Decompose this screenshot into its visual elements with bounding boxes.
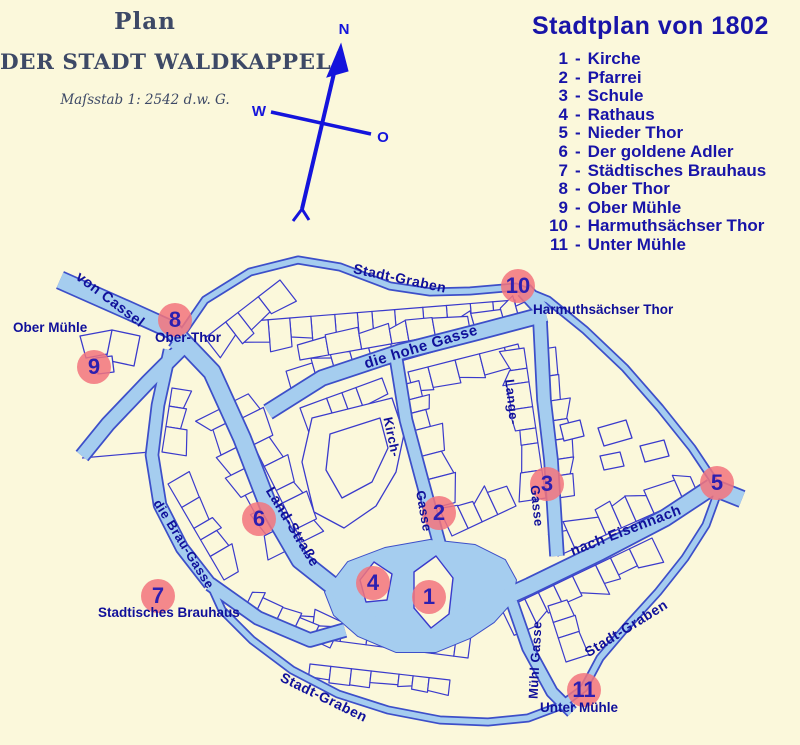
building-parcel (350, 669, 372, 688)
legend-item-separator: - (568, 236, 588, 255)
building-parcel (519, 470, 546, 502)
legend-item-label: Harmuthsächser Thor (588, 217, 765, 236)
building-parcel (329, 666, 352, 685)
compass-tail (293, 209, 309, 221)
stadtplan-canvas: NWO Plan DER STADT WALDKAPPEL Maſsstab 1… (0, 0, 800, 745)
legend-item: 2-Pfarrei (532, 69, 769, 88)
legend-title: Stadtplan von 1802 (532, 12, 769, 41)
legend-item-label: Der goldene Adler (588, 143, 734, 162)
building-outline (96, 356, 114, 374)
compass-north-label: N (339, 21, 350, 38)
legend-item-label: Nieder Thor (588, 124, 683, 143)
legend-item: 3-Schule (532, 87, 769, 106)
building-parcel (297, 337, 328, 360)
legend-item-label: Städtisches Brauhaus (588, 162, 767, 181)
building-parcel (398, 674, 413, 686)
legend-item: 6-Der goldene Adler (532, 143, 769, 162)
legend: Stadtplan von 1802 1-Kirche2-Pfarrei3-Sc… (532, 12, 769, 255)
building-parcel (507, 382, 533, 410)
scan-title-block: Plan DER STADT WALDKAPPEL Maſsstab 1: 25… (0, 0, 290, 120)
building-parcel (169, 388, 191, 408)
legend-item: 8-Ober Thor (532, 180, 769, 199)
legend-item-separator: - (568, 124, 588, 143)
building-parcel (428, 678, 450, 696)
legend-item: 11-Unter Mühle (532, 236, 769, 255)
legend-item-number: 2 (532, 69, 568, 88)
legend-item: 9-Ober Mühle (532, 199, 769, 218)
legend-item-number: 10 (532, 217, 568, 236)
building-outline (598, 420, 632, 446)
legend-item-separator: - (568, 199, 588, 218)
scan-scale-note: Maſsstab 1: 2542 d.w. G. (0, 92, 290, 108)
legend-item-number: 4 (532, 106, 568, 125)
building-outline (600, 452, 624, 470)
legend-item-separator: - (568, 50, 588, 69)
legend-item-number: 11 (532, 236, 568, 255)
legend-item-separator: - (568, 162, 588, 181)
compass-east-label: O (377, 129, 389, 146)
legend-item-label: Rathaus (588, 106, 655, 125)
legend-item: 1-Kirche (532, 50, 769, 69)
legend-item-number: 6 (532, 143, 568, 162)
building-parcel (166, 406, 187, 429)
scan-title-city: DER STADT WALDKAPPEL (0, 50, 290, 75)
scan-title-plan: Plan (0, 8, 290, 35)
legend-item-separator: - (568, 106, 588, 125)
legend-items: 1-Kirche2-Pfarrei3-Schule4-Rathaus5-Nied… (532, 50, 769, 255)
legend-item: 4-Rathaus (532, 106, 769, 125)
legend-item-separator: - (568, 143, 588, 162)
building-parcel (290, 316, 313, 338)
building-outline (640, 440, 669, 462)
legend-item-number: 8 (532, 180, 568, 199)
legend-item-number: 3 (532, 87, 568, 106)
building-parcel (370, 671, 399, 685)
legend-item: 5-Nieder Thor (532, 124, 769, 143)
legend-item-separator: - (568, 87, 588, 106)
building-parcel (412, 676, 430, 693)
building-parcel (509, 407, 536, 431)
legend-item-separator: - (568, 217, 588, 236)
legend-item: 7-Städtisches Brauhaus (532, 162, 769, 181)
legend-item-label: Kirche (588, 50, 641, 69)
building-parcel (268, 318, 292, 352)
legend-item-label: Ober Mühle (588, 199, 682, 218)
legend-item-number: 5 (532, 124, 568, 143)
legend-item-separator: - (568, 69, 588, 88)
legend-item-label: Ober Thor (588, 180, 670, 199)
legend-item-label: Pfarrei (588, 69, 642, 88)
legend-item: 10-Harmuthsächser Thor (532, 217, 769, 236)
building-parcel (522, 443, 542, 473)
building-parcel (558, 631, 588, 662)
legend-item-label: Unter Mühle (588, 236, 686, 255)
legend-item-number: 9 (532, 199, 568, 218)
legend-item-label: Schule (588, 87, 644, 106)
legend-item-separator: - (568, 180, 588, 199)
legend-item-number: 1 (532, 50, 568, 69)
legend-item-number: 7 (532, 162, 568, 181)
building-parcel (162, 427, 187, 456)
